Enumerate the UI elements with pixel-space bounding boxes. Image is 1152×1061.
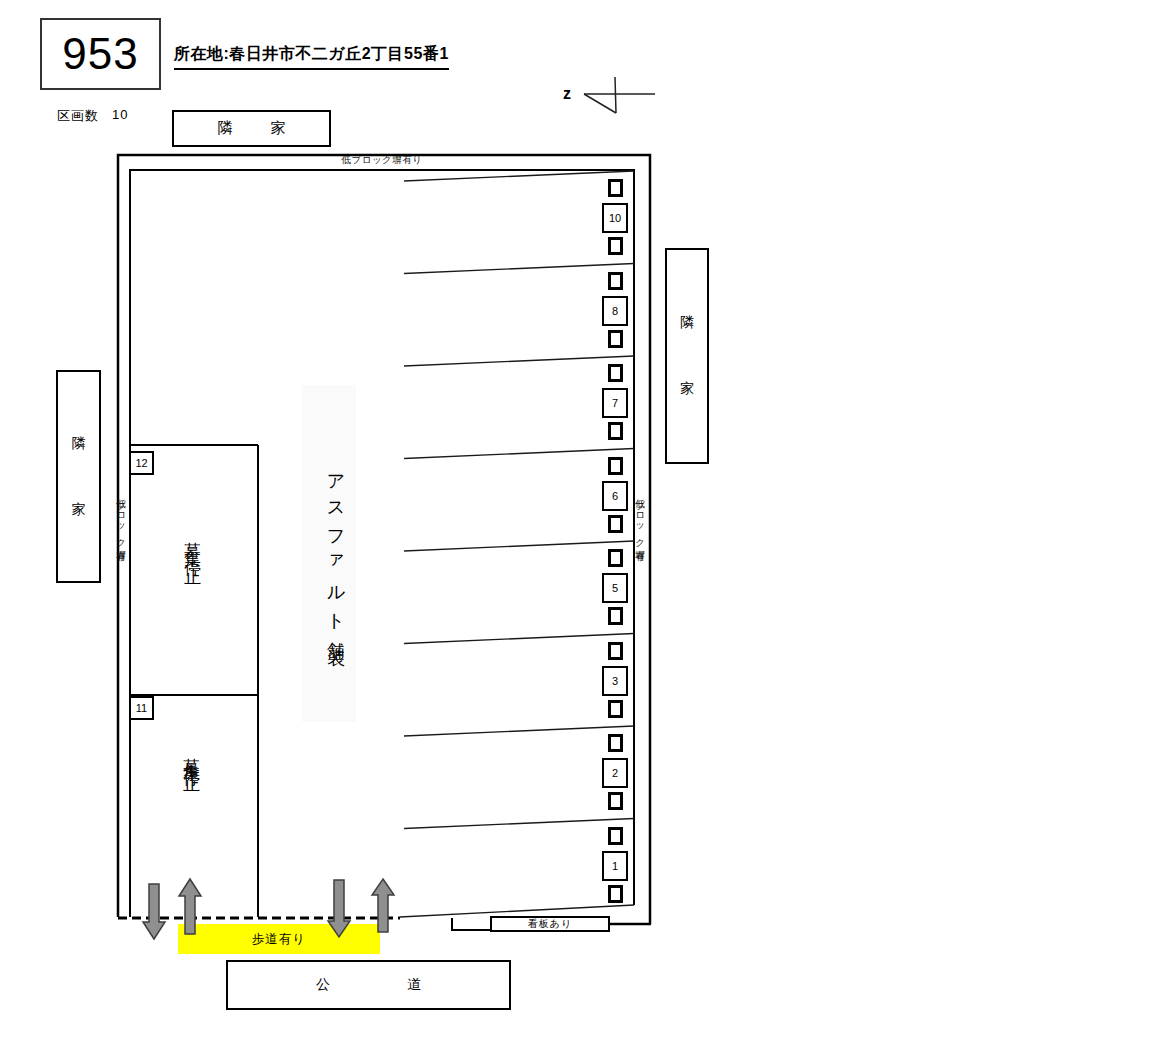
signboard-label: 看板あり <box>528 917 572 931</box>
wall-label-top: 低ブロック塀有り <box>307 154 457 167</box>
parking-space-number: 2 <box>602 758 628 788</box>
wheel-stop-marker <box>608 179 623 197</box>
wall-label-right: 低ブロック塀有り <box>633 492 646 558</box>
wheel-stop-marker <box>608 237 623 255</box>
wheel-stop-marker <box>608 549 623 567</box>
arrow-down-icon <box>143 884 165 939</box>
road-char: 公 <box>316 976 330 994</box>
neighbor-char: 隣 <box>218 119 233 138</box>
wheel-stop-marker <box>608 792 623 810</box>
parking-space-number: 7 <box>602 388 628 418</box>
parcel-count-value: 10 <box>112 107 128 125</box>
neighbor-house-left: 隣 家 <box>56 370 101 583</box>
wheel-stop-marker <box>608 515 623 533</box>
parking-layout-diagram: 953 所在地:春日井市不二ガ丘2丁目55番1 区画数 10 z 隣 家 隣 家… <box>0 0 1152 1061</box>
parking-space-number: 6 <box>602 481 628 511</box>
wheel-stop-marker <box>608 827 623 845</box>
wheel-stop-marker <box>608 607 623 625</box>
wheel-stop-marker <box>608 422 623 440</box>
public-road-box: 公 道 <box>226 960 511 1010</box>
wheel-stop-marker <box>608 364 623 382</box>
lot-number: 953 <box>62 29 138 79</box>
arrow-down-icon <box>328 880 350 937</box>
entry-exit-arrows <box>143 879 394 939</box>
wheel-stop-marker <box>608 642 623 660</box>
wheel-stop-marker <box>608 885 623 903</box>
parking-space-number: 5 <box>602 573 628 603</box>
neighbor-char: 家 <box>271 119 286 138</box>
space-status-label: 募集停止 <box>181 528 204 564</box>
diagram-lines <box>0 0 1152 1061</box>
road-char: 道 <box>407 976 421 994</box>
north-arrow-icon <box>584 77 655 113</box>
arrow-up-icon <box>372 879 394 932</box>
wall-label-left: 低ブロック塀有り <box>114 492 127 558</box>
parking-space-number: 3 <box>602 666 628 696</box>
parking-space-number: 1 <box>602 851 628 881</box>
signboard-step-line <box>452 918 491 930</box>
parcel-count-label: 区画数 <box>57 107 99 125</box>
wheel-stop-marker <box>608 330 623 348</box>
neighbor-char: 家 <box>680 380 694 398</box>
neighbor-char: 隣 <box>680 314 694 332</box>
surface-label: アスファルト舗装 <box>324 462 348 641</box>
wheel-stop-marker <box>608 272 623 290</box>
compass-letter: z <box>563 85 571 103</box>
space-status-label: 募集停止 <box>180 744 203 768</box>
address-text: 所在地:春日井市不二ガ丘2丁目55番1 <box>174 44 449 70</box>
neighbor-house-top: 隣 家 <box>172 110 331 147</box>
wheel-stop-marker <box>608 700 623 718</box>
left-spaces-outline <box>130 445 258 917</box>
arrow-up-icon <box>179 879 201 934</box>
neighbor-char: 家 <box>72 501 86 519</box>
parking-space-number: 8 <box>602 296 628 326</box>
parcel-count: 区画数 10 <box>57 107 128 125</box>
parking-space-number: 12 <box>129 451 154 475</box>
inner-boundary <box>130 170 634 917</box>
wheel-stop-marker <box>608 457 623 475</box>
neighbor-char: 隣 <box>72 435 86 453</box>
parking-space-number: 10 <box>602 203 628 233</box>
parking-space-number: 11 <box>129 696 154 720</box>
signboard-box: 看板あり <box>490 916 610 932</box>
lot-number-box: 953 <box>40 18 161 90</box>
wheel-stop-marker <box>608 734 623 752</box>
neighbor-house-right: 隣 家 <box>665 248 709 464</box>
space-divider-lines <box>400 171 634 917</box>
